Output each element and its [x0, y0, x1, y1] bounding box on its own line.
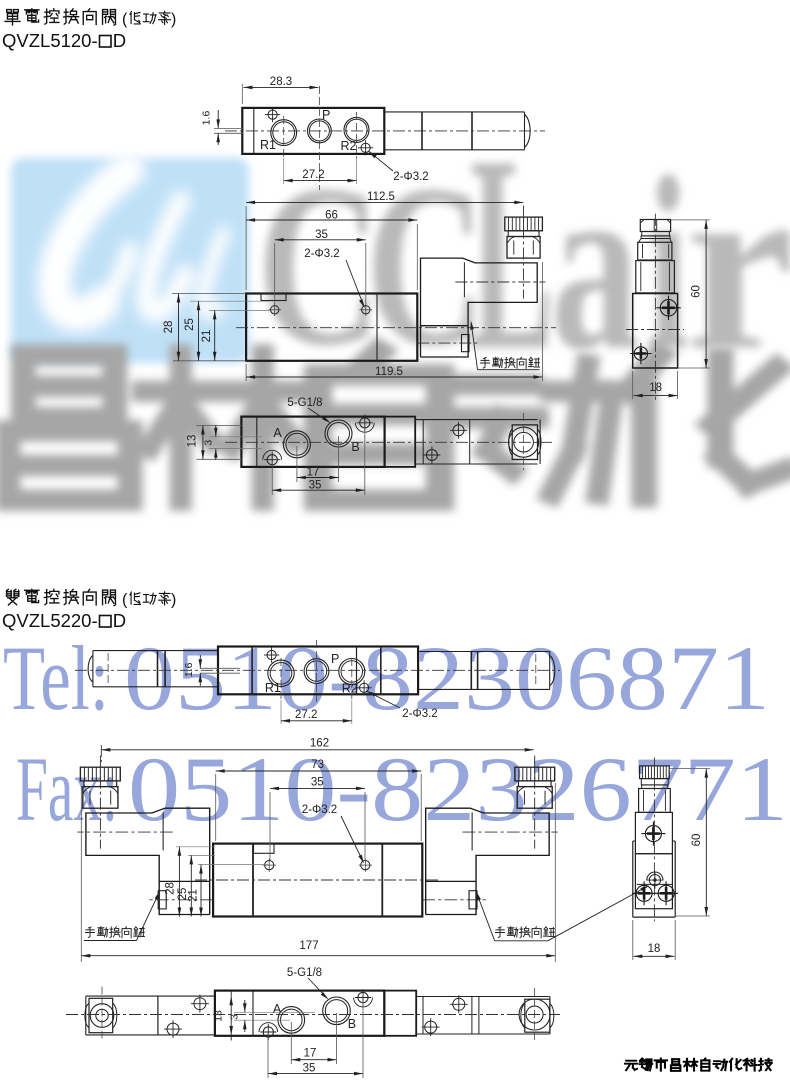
svg-text:66: 66	[325, 209, 338, 221]
svg-text:27.2: 27.2	[295, 709, 317, 721]
svg-text:35: 35	[303, 1062, 316, 1074]
svg-text:112.5: 112.5	[367, 191, 395, 203]
svg-text:2-Φ3.2: 2-Φ3.2	[402, 708, 437, 720]
svg-text:QVZL5220-: QVZL5220-	[2, 610, 98, 631]
svg-text:R1: R1	[265, 681, 281, 695]
svg-text:D: D	[113, 610, 126, 631]
svg-text:A: A	[273, 426, 282, 440]
svg-text:R2: R2	[341, 139, 357, 153]
svg-text:60: 60	[691, 285, 703, 298]
svg-text:73: 73	[311, 759, 324, 771]
svg-text:B: B	[348, 1017, 356, 1031]
svg-text:177: 177	[299, 940, 318, 952]
svg-text:5-G1/8: 5-G1/8	[287, 397, 322, 409]
svg-text:119.5: 119.5	[375, 366, 403, 378]
svg-text:35: 35	[315, 229, 328, 241]
svg-text:(: (	[122, 11, 128, 28]
svg-text:17: 17	[307, 466, 320, 478]
svg-text:35: 35	[311, 776, 324, 788]
svg-text:R2: R2	[342, 682, 358, 696]
svg-text:35: 35	[309, 479, 322, 491]
svg-text:A: A	[273, 1002, 282, 1016]
svg-text:162: 162	[310, 737, 329, 749]
svg-text:5-G1/8: 5-G1/8	[287, 967, 322, 979]
svg-text:28.3: 28.3	[270, 76, 292, 88]
svg-text:17: 17	[304, 1048, 317, 1060]
svg-text:25: 25	[184, 318, 196, 331]
svg-text:QVZL5120-: QVZL5120-	[2, 30, 98, 51]
svg-text:21: 21	[201, 330, 213, 343]
svg-text:): )	[171, 592, 176, 609]
svg-text:R1: R1	[260, 138, 276, 152]
svg-text:0510-82326771: 0510-82326771	[128, 738, 788, 840]
svg-text:1.6: 1.6	[183, 662, 195, 677]
svg-text:2-Φ3.2: 2-Φ3.2	[302, 804, 337, 816]
svg-text:2-Φ3.2: 2-Φ3.2	[304, 248, 339, 260]
svg-text:P: P	[322, 108, 330, 122]
svg-text:1.6: 1.6	[201, 111, 213, 126]
svg-text:18: 18	[649, 382, 662, 394]
svg-text:D: D	[113, 30, 126, 51]
svg-text:3: 3	[228, 1014, 240, 1020]
svg-text:60: 60	[691, 834, 703, 847]
svg-text:P: P	[331, 652, 339, 666]
svg-text:13: 13	[212, 1010, 224, 1022]
svg-text:28: 28	[164, 882, 176, 895]
svg-text:(: (	[122, 592, 128, 609]
svg-text:13: 13	[186, 435, 198, 448]
svg-text:28: 28	[163, 321, 175, 334]
svg-text:18: 18	[648, 943, 661, 955]
svg-text:3: 3	[203, 440, 215, 446]
svg-text:Fax:: Fax:	[16, 738, 118, 840]
svg-text:27.2: 27.2	[302, 169, 324, 181]
svg-text:): )	[171, 11, 176, 28]
svg-text:0510-82306871: 0510-82306871	[124, 627, 770, 729]
svg-text:2-Φ3.2: 2-Φ3.2	[393, 171, 428, 183]
svg-text:21: 21	[187, 889, 199, 902]
